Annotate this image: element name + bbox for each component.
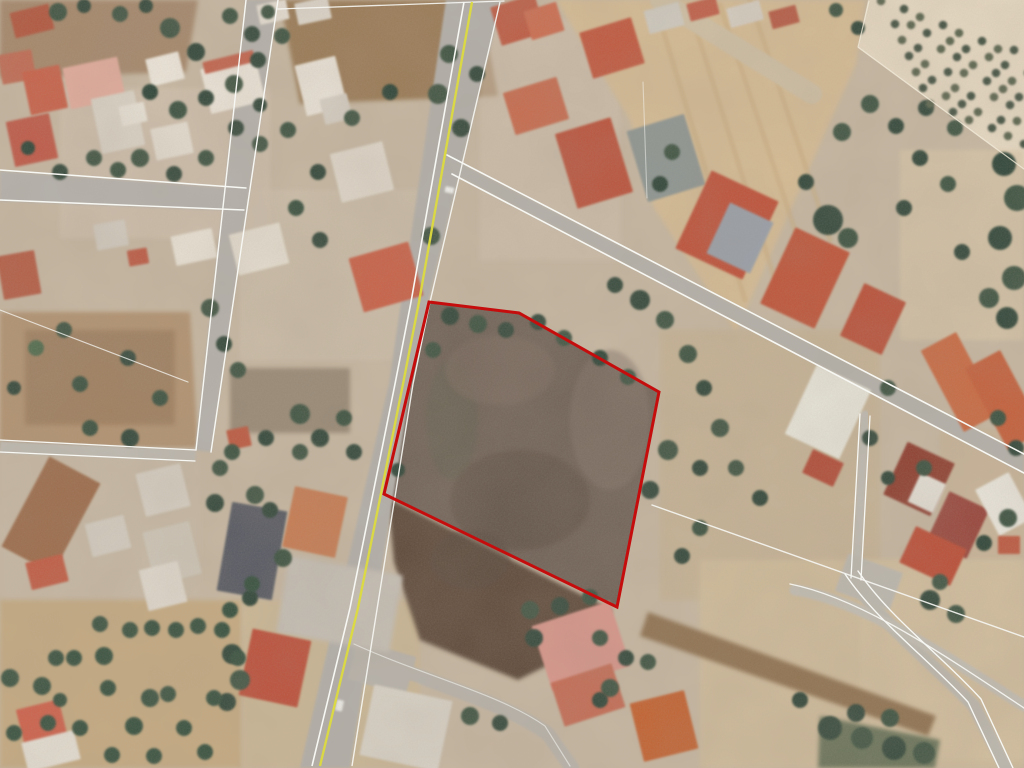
satellite-imagery [0,0,1024,768]
satellite-map-view[interactable] [0,0,1024,768]
image-texture [0,0,1024,768]
texture [0,0,1024,768]
